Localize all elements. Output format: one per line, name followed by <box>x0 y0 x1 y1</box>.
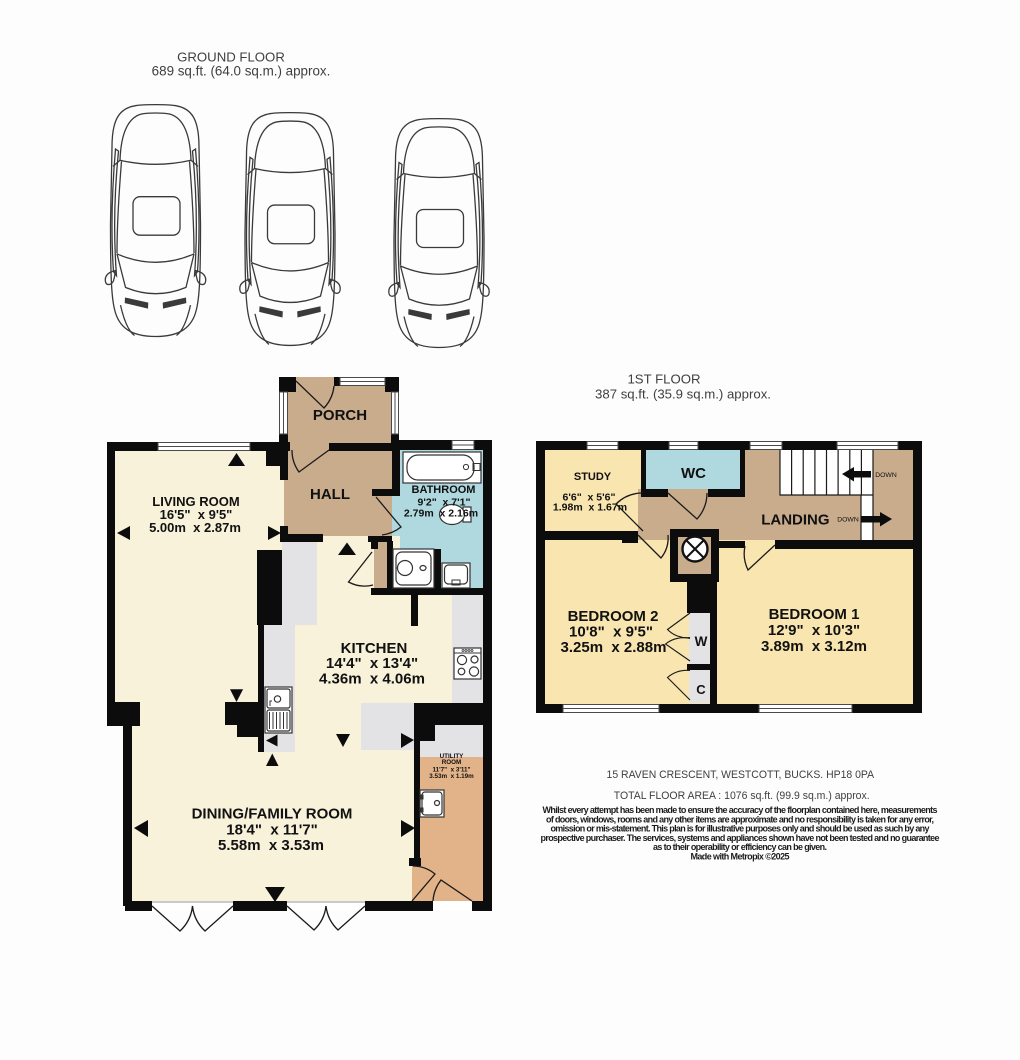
svg-text:DOWN: DOWN <box>875 472 897 479</box>
svg-text:BEDROOM 1: BEDROOM 1 <box>769 606 860 623</box>
svg-text:GROUND FLOOR: GROUND FLOOR <box>177 50 285 65</box>
svg-text:C: C <box>696 682 706 697</box>
svg-text:BATHROOM: BATHROOM <box>412 484 476 496</box>
svg-text:12'9" x 10'3": 12'9" x 10'3" <box>768 622 860 639</box>
svg-text:387 sq.ft. (35.9 sq.m.) approx: 387 sq.ft. (35.9 sq.m.) approx. <box>595 387 771 402</box>
svg-text:STUDY: STUDY <box>574 471 612 483</box>
svg-text:BEDROOM 2: BEDROOM 2 <box>568 608 659 625</box>
svg-text:689 sq.ft. (64.0 sq.m.) approx: 689 sq.ft. (64.0 sq.m.) approx. <box>152 63 331 78</box>
svg-text:10'8" x 9'5": 10'8" x 9'5" <box>569 624 653 641</box>
svg-text:1ST FLOOR: 1ST FLOOR <box>627 372 700 387</box>
svg-text:LANDING: LANDING <box>761 511 829 528</box>
svg-text:5.00m x 2.87m: 5.00m x 2.87m <box>149 520 241 535</box>
svg-text:14'4" x 13'4": 14'4" x 13'4" <box>326 655 418 672</box>
svg-text:W: W <box>695 634 708 649</box>
svg-text:15 RAVEN CRESCENT, WESTCOTT, B: 15 RAVEN CRESCENT, WESTCOTT, BUCKS. HP18… <box>607 769 875 781</box>
svg-text:HALL: HALL <box>310 486 350 503</box>
svg-text:3.25m x 2.88m: 3.25m x 2.88m <box>561 639 667 656</box>
svg-text:18'4" x 11'7": 18'4" x 11'7" <box>226 822 317 839</box>
svg-text:DOWN: DOWN <box>837 517 859 524</box>
svg-text:PORCH: PORCH <box>313 407 367 424</box>
svg-text:2.79m x 2.16m: 2.79m x 2.16m <box>404 508 478 520</box>
svg-text:WC: WC <box>681 465 706 482</box>
svg-text:TOTAL FLOOR AREA : 1076 sq.ft.: TOTAL FLOOR AREA : 1076 sq.ft. (99.9 sq.… <box>614 790 870 802</box>
svg-text:4.36m x 4.06m: 4.36m x 4.06m <box>319 671 425 688</box>
svg-text:ROOM: ROOM <box>442 759 462 766</box>
svg-text:5.58m x 3.53m: 5.58m x 3.53m <box>218 837 324 854</box>
svg-text:3.53m x 1.19m: 3.53m x 1.19m <box>429 773 474 780</box>
svg-text:3.89m x 3.12m: 3.89m x 3.12m <box>761 638 867 655</box>
svg-text:Made with Metropix ©2025: Made with Metropix ©2025 <box>691 852 790 862</box>
svg-text:1.98m x 1.67m: 1.98m x 1.67m <box>553 502 627 514</box>
svg-text:DINING/FAMILY ROOM: DINING/FAMILY ROOM <box>192 806 353 823</box>
